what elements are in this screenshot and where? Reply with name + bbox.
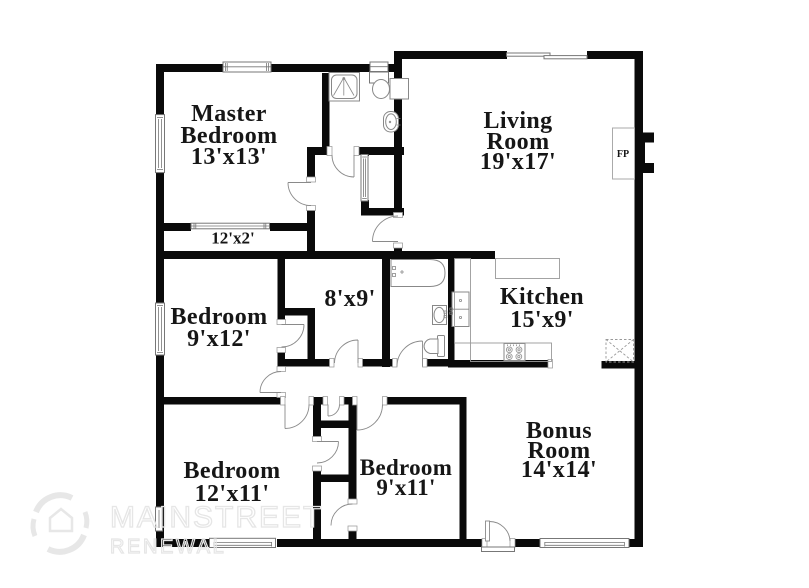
svg-text:14'x14': 14'x14' [521,457,597,483]
svg-text:9'x12': 9'x12' [187,326,251,352]
svg-text:9'x11': 9'x11' [376,475,435,500]
svg-text:13'x13': 13'x13' [191,144,267,170]
svg-text:8'x9': 8'x9' [324,286,375,312]
svg-text:FP: FP [617,149,629,160]
svg-text:12'x2': 12'x2' [211,229,254,248]
svg-text:RENEWAL: RENEWAL [110,536,226,558]
svg-text:19'x17': 19'x17' [480,149,556,175]
svg-text:MAINSTREET: MAINSTREET [110,501,323,534]
svg-text:15'x9': 15'x9' [510,307,574,333]
